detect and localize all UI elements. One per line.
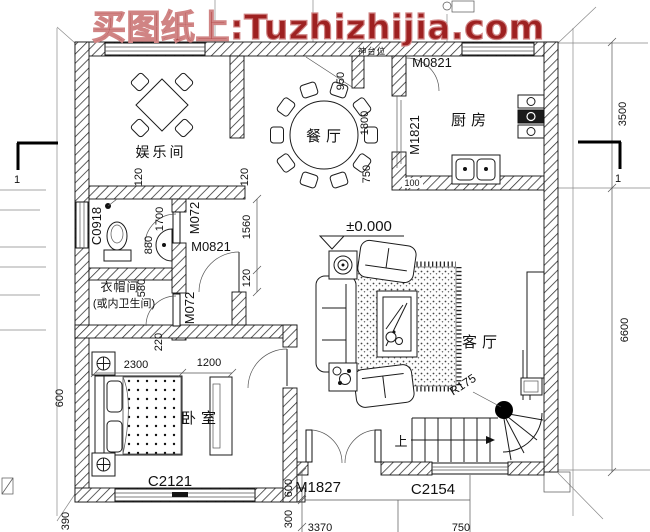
dim-bottom-3370: 3370	[308, 522, 332, 532]
room-label-dining: 餐厅	[306, 128, 346, 145]
dim-bottom-750: 750	[452, 522, 470, 532]
dim-hall: 1560	[241, 215, 253, 239]
nightstand-bottom	[92, 453, 115, 476]
code-window-bath: C0918	[89, 207, 104, 245]
dim-porch-600: 600	[283, 479, 295, 497]
section-mark-right: 1	[615, 173, 621, 185]
toilet	[104, 199, 131, 261]
mahjong-table	[130, 72, 194, 138]
stair-up-label: 上	[394, 434, 407, 449]
code-door-kitchen: M1821	[407, 115, 422, 155]
code-window-bedroom: C2121	[148, 473, 192, 490]
dim-dining-kitchen: 1800	[359, 111, 371, 135]
dim-right-top: 3500	[617, 102, 629, 126]
dim-bed: 2300	[124, 359, 148, 371]
dim-offset-c: 120	[241, 269, 253, 287]
side-table-plant	[329, 363, 357, 391]
room-label-cloakroom: 衣帽间	[100, 279, 139, 294]
code-door-entry: M1827	[295, 479, 341, 496]
window-bedroom-C2121	[115, 489, 255, 501]
floor-plan-drawing: 1 1 娱乐间 餐厅 厨房 客厅 卧室 衣帽间 (或内卫生间) 神台位 M082…	[0, 0, 650, 532]
bed	[95, 376, 182, 455]
dim-kitchen-side: 750	[361, 165, 373, 183]
window-stairs-C2154	[432, 463, 508, 474]
coffee-table	[377, 291, 417, 357]
washbasin	[156, 229, 172, 261]
stove	[518, 95, 544, 138]
dim-porch-300: 300	[283, 510, 295, 528]
dim-niche: 950	[335, 72, 347, 90]
room-label-bedroom: 卧室	[181, 410, 221, 427]
elevation-label: ±0.000	[346, 218, 392, 235]
code-door-hall: M0821	[191, 239, 231, 254]
dim-wardrobe: 1200	[197, 357, 221, 369]
nightstand-top	[92, 352, 115, 375]
code-door-top: M0821	[412, 55, 452, 70]
code-door-bath: M072	[187, 202, 202, 235]
sofa-top	[357, 239, 418, 283]
dim-cloak-depth: 220	[153, 333, 165, 351]
section-mark-left: 1	[14, 174, 20, 186]
dim-bath-width: 880	[143, 236, 155, 254]
watermark-text: 买图纸上:Tuzhizhijia.com	[92, 0, 545, 49]
side-table-lamp	[329, 251, 357, 279]
kitchen-sink	[452, 155, 500, 184]
dim-offset-a: 120	[133, 168, 145, 186]
code-door-cloak: M072	[182, 292, 197, 325]
dim-offset-b: 120	[239, 168, 251, 186]
dim-left-offset: 600	[54, 389, 66, 407]
stair-up-arrow	[411, 436, 495, 444]
elevation-marker	[320, 236, 344, 249]
dim-bath-length: 1700	[154, 207, 166, 231]
entry-double-door-M1827	[306, 430, 381, 463]
floor-plan-page: 1 1 娱乐间 餐厅 厨房 客厅 卧室 衣帽间 (或内卫生间) 神台位 M082…	[0, 0, 650, 532]
sofa-left	[316, 276, 356, 372]
window-bathroom-C0918	[76, 202, 88, 248]
dim-right-bottom: 6600	[619, 318, 631, 342]
room-label-kitchen: 厨房	[451, 112, 491, 129]
sofa-bottom	[353, 364, 415, 409]
code-window-stairs: C2154	[411, 481, 455, 498]
dim-left-390: 390	[60, 512, 72, 530]
room-label-entertainment: 娱乐间	[136, 144, 187, 160]
bedroom-door	[248, 349, 287, 388]
newel-post	[495, 401, 513, 419]
tv-cabinet	[527, 272, 544, 378]
room-label-living: 客厅	[462, 334, 502, 351]
hall-door-M0821	[199, 252, 239, 292]
dim-wall-100: 100	[404, 178, 419, 188]
dim-cloak-width: 580	[136, 279, 148, 297]
